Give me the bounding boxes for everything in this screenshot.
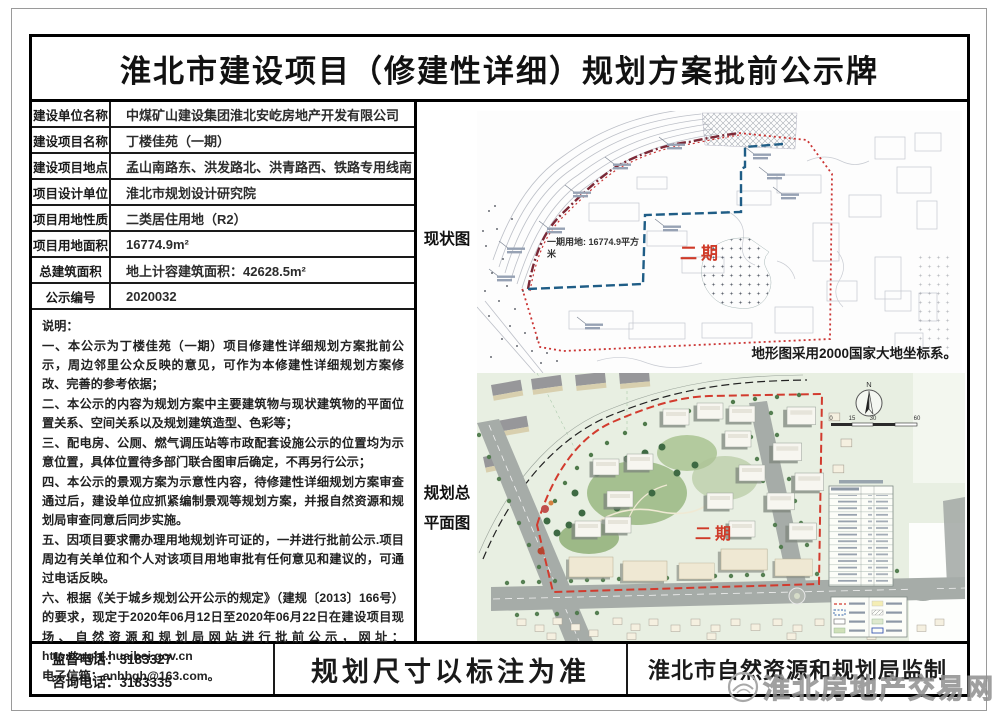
datum-note: 地形图采用2000国家大地坐标系。 [751,345,957,361]
info-label: 建设单位名称 [32,102,111,126]
plan-map-label: 规划总 平面图 [417,373,477,641]
phase2-label-sitemap: 二期 [680,244,722,263]
maps-panel: 现状图 [417,102,967,641]
dimension-note: 规划尺寸以标注为准 [275,644,628,694]
info-value: 地上计容建筑面积：42628.5m² [111,261,414,280]
info-value: 16774.9m² [111,237,414,252]
page-title: 淮北市建设项目（修建性详细）规划方案批前公示牌 [32,37,967,102]
table-row: 项目用地性质 二类居住用地（R2） [32,206,414,232]
site-status-map: 一期用地: 16774.9平方米 二期 地形图采用2000国家大地坐标系。 [477,111,962,373]
note-item-4: 四、本公示的景观方案为示意性内容，待修建性详细规划方案审查通过后，建设单位应抓紧… [42,473,404,530]
site-map-label: 现状图 [417,102,477,373]
notes-section: 说明： 一、本公示为丁楼佳苑（一期）项目修建性详细规划方案批前公示，周边邻里公众… [32,310,414,687]
table-row: 项目用地面积 16774.9m² [32,232,414,258]
info-label: 项目设计单位 [32,180,111,204]
info-value: 2020032 [111,289,414,304]
info-label: 项目用地性质 [32,206,111,230]
notes-heading: 说明： [42,317,404,336]
note-item-5: 五、因项目要求需办理用地规划许可证的，一并进行批前公示.项目周边有关单位和个人对… [42,531,404,588]
info-label: 建设项目地点 [32,154,111,178]
map-legend [831,597,907,637]
phase1-area-note: 一期用地: 16774.9平方米 [547,236,647,260]
info-value: 二类居住用地（R2） [111,209,414,228]
info-label: 建设项目名称 [32,128,111,152]
info-label: 公示编号 [32,284,111,308]
info-value: 孟山南路东、洪发路北、洪青路西、铁路专用线南 [111,157,414,176]
supervision-phone: 监督电话：3183327 [52,648,273,668]
plan-map: 二期 N [477,373,965,641]
svg-text:15: 15 [849,416,856,422]
svg-text:N: N [866,380,871,389]
phase2-label-planmap: 二期 [695,524,735,543]
table-row: 总建筑面积 地上计容建筑面积：42628.5m² [32,258,414,284]
info-value: 中煤矿山建设集团淮北安屹房地产开发有限公司 [111,105,414,124]
note-item-2: 二、本公示的内容为规划方案中主要建筑物与现状建筑物的平面位置关系、空间关系以及规… [42,395,404,433]
svg-text:60: 60 [914,416,921,422]
info-label: 总建筑面积 [32,258,111,282]
svg-text:30: 30 [870,416,877,422]
plan-map-section: 规划总 平面图 [417,373,967,641]
table-row: 建设单位名称 中煤矿山建设集团淮北安屹房地产开发有限公司 [32,102,414,128]
board-content: 建设单位名称 中煤矿山建设集团淮北安屹房地产开发有限公司 建设项目名称 丁楼佳苑… [32,102,967,641]
table-row: 公示编号 2020032 [32,284,414,310]
info-column: 建设单位名称 中煤矿山建设集团淮北安屹房地产开发有限公司 建设项目名称 丁楼佳苑… [32,102,417,641]
info-value: 淮北市规划设计研究院 [111,183,414,202]
info-table: 建设单位名称 中煤矿山建设集团淮北安屹房地产开发有限公司 建设项目名称 丁楼佳苑… [32,102,414,310]
table-row: 建设项目地点 孟山南路东、洪发路北、洪青路西、铁路专用线南 [32,154,414,180]
announcement-board-photo: 淮北市建设项目（修建性详细）规划方案批前公示牌 建设单位名称 中煤矿山建设集团淮… [0,0,1000,721]
note-item-1: 一、本公示为丁楼佳苑（一期）项目修建性详细规划方案批前公示，周边邻里公众反映的意… [42,337,404,394]
indicators-table [829,480,893,586]
site-map-section: 现状图 [417,102,967,373]
table-row: 建设项目名称 丁楼佳苑（一期） [32,128,414,154]
note-item-3: 三、配电房、公厕、燃气调压站等市政配套设施公示的位置均为示意位置，具体位置待多部… [42,434,404,472]
announcement-board: 淮北市建设项目（修建性详细）规划方案批前公示牌 建设单位名称 中煤矿山建设集团淮… [29,34,970,697]
watermark-text: 淮北房地产交易网 [763,667,995,706]
watermark: 淮北房地产交易网 [725,667,995,706]
consult-phone: 咨询电话：3183335 [52,671,273,691]
info-label: 项目用地面积 [32,232,111,256]
info-value: 丁楼佳苑（一期） [111,131,414,150]
footer-phones: 监督电话：3183327 咨询电话：3183335 [32,644,275,694]
watermark-logo-icon [725,669,761,705]
table-row: 项目设计单位 淮北市规划设计研究院 [32,180,414,206]
